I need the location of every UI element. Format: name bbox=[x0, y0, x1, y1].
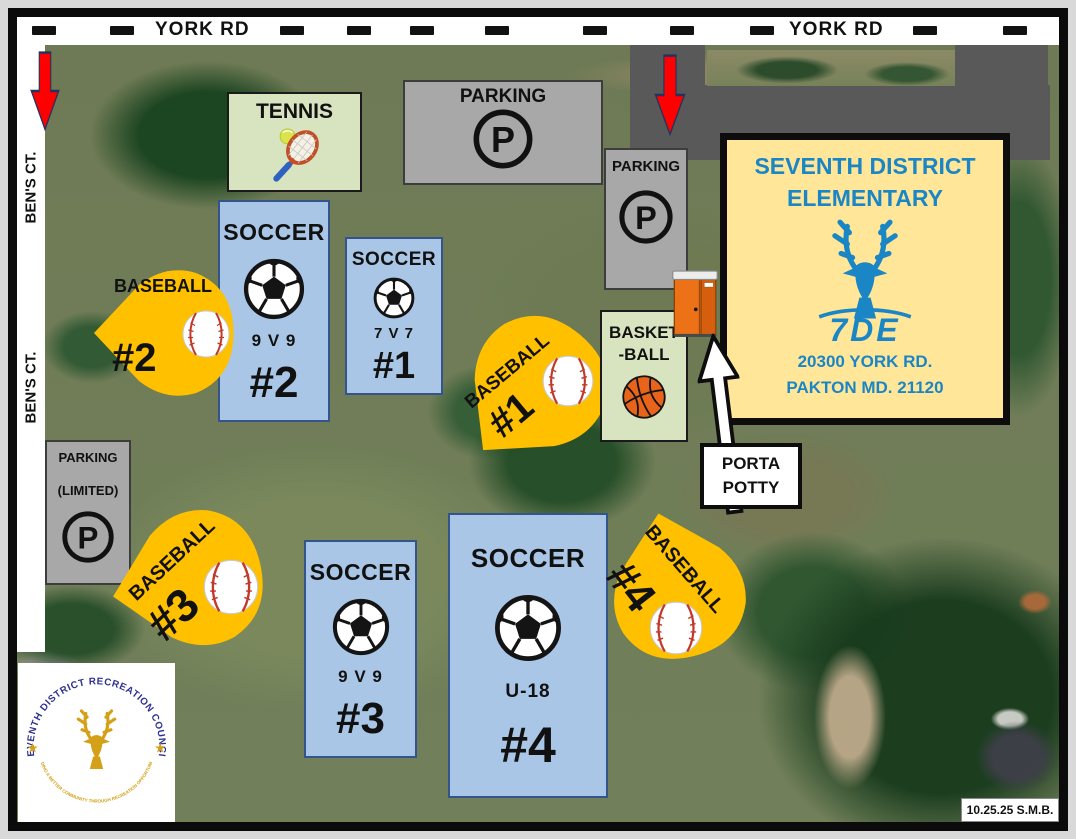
entrance-arrow-left-icon bbox=[27, 51, 63, 131]
road-dash bbox=[280, 26, 304, 35]
school-deer-logo-icon bbox=[805, 216, 925, 320]
entrance-arrow-right-icon bbox=[651, 54, 689, 136]
tennis-court-marker: TENNIS bbox=[227, 92, 362, 192]
baseball-2-title: BASEBALL bbox=[114, 276, 212, 297]
baseball-field-1-marker: BASEBALL #1 bbox=[450, 312, 612, 474]
soccer-1-number: #1 bbox=[373, 349, 415, 383]
soccer-3-title: SOCCER bbox=[310, 559, 411, 586]
soccer-1-format: 7 V 7 bbox=[374, 325, 414, 342]
soccer-ball-icon bbox=[332, 598, 390, 656]
grass-strip bbox=[707, 50, 955, 86]
porta-potty-icon bbox=[672, 268, 718, 340]
bens-ct-label-lower-wrap: BEN'S CT. bbox=[17, 322, 45, 452]
date-stamp: 10.25.25 S.M.B. bbox=[961, 798, 1059, 822]
baseball-icon bbox=[181, 309, 231, 359]
soccer-3-number: #3 bbox=[336, 699, 385, 739]
basketball-label-line1: BASKET bbox=[609, 322, 679, 344]
porta-potty-line2: POTTY bbox=[723, 476, 780, 500]
tennis-label: TENNIS bbox=[256, 100, 333, 124]
road-dash bbox=[410, 26, 434, 35]
road-dash bbox=[750, 26, 774, 35]
school-title-line1: SEVENTH DISTRICT bbox=[754, 150, 975, 182]
baseball-icon bbox=[202, 558, 260, 616]
soccer-1-title: SOCCER bbox=[352, 249, 436, 271]
parking-icon: P bbox=[618, 189, 674, 245]
recreation-map-page: YORK RD YORK RD BEN'S CT. BEN'S CT. TENN… bbox=[0, 0, 1076, 839]
tennis-racket-icon bbox=[264, 124, 326, 186]
council-logo-deer-icon bbox=[78, 711, 114, 769]
soccer-field-4-marker: SOCCER U-18 #4 bbox=[448, 513, 608, 798]
porta-potty-line1: PORTA bbox=[722, 452, 780, 476]
soccer-4-title: SOCCER bbox=[471, 543, 585, 574]
aerial-map: YORK RD YORK RD BEN'S CT. BEN'S CT. TENN… bbox=[17, 17, 1059, 822]
svg-text:P: P bbox=[635, 200, 657, 236]
soccer-ball-icon bbox=[373, 277, 415, 319]
bens-ct-label-upper: BEN'S CT. bbox=[23, 151, 40, 223]
school-address-line1: 20300 YORK RD. bbox=[798, 349, 933, 375]
porta-potty-label-box: PORTA POTTY bbox=[700, 443, 802, 509]
council-logo-star-right-icon: ★ bbox=[154, 740, 166, 755]
soccer-4-number: #4 bbox=[500, 723, 556, 768]
council-logo-star-left-icon: ★ bbox=[27, 740, 39, 755]
road-dash bbox=[913, 26, 937, 35]
soccer-2-format: 9 V 9 bbox=[252, 331, 297, 351]
council-logo: SEVENTH DISTRICT RECREATION COUNCIL "BUI… bbox=[18, 663, 175, 822]
soccer-field-1-marker: SOCCER 7 V 7 #1 bbox=[345, 237, 443, 395]
baseball-field-3-marker: BASEBALL #3 bbox=[105, 500, 267, 662]
council-logo-emblem: SEVENTH DISTRICT RECREATION COUNCIL "BUI… bbox=[18, 663, 175, 822]
baseball-icon bbox=[541, 354, 595, 408]
bens-ct-label-lower: BEN'S CT. bbox=[23, 351, 40, 423]
road-dash bbox=[583, 26, 607, 35]
baseball-icon bbox=[648, 600, 704, 656]
soccer-4-format: U-18 bbox=[505, 681, 550, 703]
road-dash bbox=[485, 26, 509, 35]
parking-lot-top-marker: PARKING P bbox=[403, 80, 603, 185]
road-dash bbox=[347, 26, 371, 35]
soccer-field-3-marker: SOCCER 9 V 9 #3 bbox=[304, 540, 417, 758]
road-dash bbox=[1003, 26, 1027, 35]
parking-top-label: PARKING bbox=[460, 86, 546, 108]
baseball-field-4-marker: BASEBALL #4 bbox=[597, 505, 755, 663]
school-logo-text: 7DE bbox=[829, 312, 900, 349]
parking-icon: P bbox=[472, 108, 534, 170]
bens-ct-label-upper-wrap: BEN'S CT. bbox=[17, 122, 45, 252]
driveway-area bbox=[955, 45, 1048, 135]
road-dash bbox=[32, 26, 56, 35]
parking-school-label: PARKING bbox=[612, 158, 680, 175]
baseball-2-number: #2 bbox=[112, 336, 157, 381]
basketball-label-line2: -BALL bbox=[609, 344, 679, 366]
york-rd-label-left: YORK RD bbox=[155, 19, 250, 41]
soccer-2-title: SOCCER bbox=[223, 219, 324, 246]
road-dash bbox=[670, 26, 694, 35]
school-title-line2: ELEMENTARY bbox=[787, 182, 943, 214]
basketball-icon bbox=[621, 374, 667, 420]
school-info-card: SEVENTH DISTRICT ELEMENTARY 7DE 20300 YO… bbox=[720, 133, 1010, 425]
parking-limited-sublabel: (LIMITED) bbox=[58, 483, 119, 498]
york-rd-label-right: YORK RD bbox=[789, 19, 884, 41]
soccer-2-number: #2 bbox=[250, 363, 299, 403]
soccer-ball-icon bbox=[243, 258, 305, 320]
svg-text:P: P bbox=[491, 119, 515, 160]
york-road-strip: YORK RD YORK RD bbox=[17, 17, 1059, 45]
parking-limited-label: PARKING bbox=[59, 450, 118, 465]
soccer-ball-icon bbox=[494, 594, 562, 662]
road-dash bbox=[110, 26, 134, 35]
school-address-line2: PAKTON MD. 21120 bbox=[786, 375, 943, 401]
baseball-field-2-marker: BASEBALL #2 bbox=[88, 258, 238, 408]
soccer-3-format: 9 V 9 bbox=[338, 667, 383, 687]
